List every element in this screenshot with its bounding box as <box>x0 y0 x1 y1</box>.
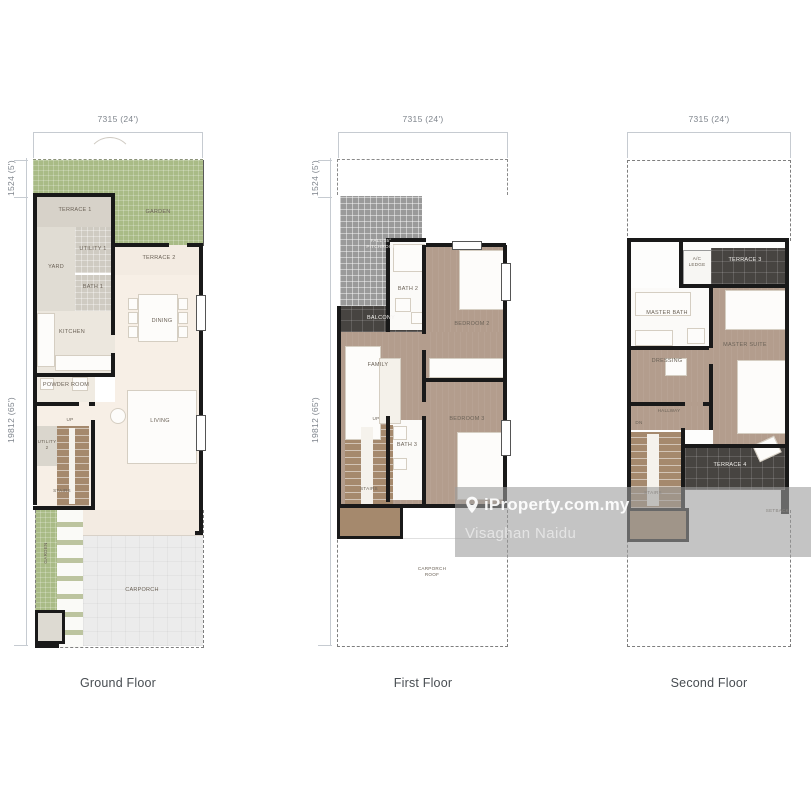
watermark-brand-text: iProperty.com.my <box>484 495 630 515</box>
ground-powder-label: POWDER ROOM <box>36 382 96 389</box>
wall-segment <box>111 195 115 247</box>
boundary-dashed-line <box>507 159 508 195</box>
bed-furniture <box>737 360 789 434</box>
door-opening <box>422 402 426 416</box>
wall-segment <box>426 378 504 382</box>
wall-segment <box>627 238 789 242</box>
toilet <box>687 328 705 344</box>
dimension-tick <box>507 132 508 158</box>
door-opening <box>685 402 703 406</box>
wall-segment <box>685 444 789 448</box>
ground-up-label: UP <box>40 417 100 423</box>
wall-segment <box>33 402 79 406</box>
ground-garden-label: GARDEN <box>128 209 188 216</box>
watermark-band: iProperty.com.my Visaghan Naidu <box>455 487 811 557</box>
wall-segment <box>33 195 37 505</box>
first-dim-left-lower: 19812 (65') <box>310 390 320 450</box>
ground-terrace1-label: TERRACE 1 <box>45 207 105 214</box>
ground-utility2-label: UTILITY 2 <box>37 439 57 451</box>
dimension-tick <box>202 132 203 158</box>
dimension-tick <box>14 160 28 161</box>
wall-segment <box>195 531 203 535</box>
dining-chair <box>128 298 138 310</box>
boundary-dashed-line <box>337 159 508 160</box>
second-hallway-label: HALLWAY <box>643 408 695 414</box>
ground-dining-label: DINING <box>132 318 192 325</box>
wall-segment <box>111 353 115 375</box>
family-sofa <box>345 346 381 440</box>
window <box>501 420 511 456</box>
basin <box>393 458 407 470</box>
door-opening <box>422 334 426 350</box>
first-up-label: UP <box>346 416 406 422</box>
first-balcony-label: BALCONY <box>348 315 414 322</box>
side-table <box>110 408 126 424</box>
boundary-dashed-line <box>337 159 338 195</box>
wall-segment <box>33 193 115 197</box>
ground-kitchen-label: KITCHEN <box>42 329 102 336</box>
dimension-line <box>33 132 203 133</box>
ground-dim-left-upper: 1524 (5') <box>6 148 16 208</box>
second-dim-top: 7315 (24') <box>649 114 769 124</box>
bed-furniture <box>459 250 505 310</box>
dimension-tick <box>338 132 339 158</box>
dimension-tick <box>627 132 628 158</box>
kitchen-counter <box>37 313 55 367</box>
ground-living-label: LIVING <box>130 418 190 425</box>
second-terrace3-area <box>711 248 789 284</box>
second-floor-title: Second Floor <box>649 676 769 690</box>
stair-stringer <box>361 427 373 505</box>
dimension-tick <box>318 197 332 198</box>
first-bath2-label: BATH 2 <box>378 286 438 293</box>
first-family-label: FAMILY <box>348 362 408 369</box>
toilet <box>395 298 411 312</box>
dimension-tick <box>33 132 34 158</box>
location-pin-icon <box>465 496 479 514</box>
ground-side-garden-label: GARDEN <box>43 523 49 583</box>
wall-segment <box>422 245 426 506</box>
first-floor-plan: FALL 15° PITCHROOF BALCONY BATH 2 BEDROO… <box>337 158 509 650</box>
first-bath3-label: BATH 3 <box>377 442 437 449</box>
wall-segment <box>33 506 95 510</box>
first-floor-title: First Floor <box>363 676 483 690</box>
first-dim-left-upper: 1524 (5') <box>310 148 320 208</box>
window <box>452 241 482 250</box>
second-terrace4-label: TERRACE 4 <box>700 462 760 469</box>
first-pitchroof-label: FALL 15° PITCHROOF <box>364 238 398 250</box>
second-ac-ledge-label: A/C LEDGE <box>685 256 709 268</box>
dining-chair <box>178 326 188 338</box>
wall-segment <box>631 346 709 350</box>
wall-segment <box>627 240 631 510</box>
wardrobe <box>429 358 505 378</box>
wall-segment <box>337 306 341 508</box>
ground-stairs-label: STAIRS <box>32 488 92 494</box>
ground-floor-title: Ground Floor <box>58 676 178 690</box>
living-sofa <box>127 390 197 464</box>
floorplan-canvas: 7315 (24') 1524 (5') 19812 (65') 7315 (2… <box>0 0 811 811</box>
dimension-line <box>330 158 331 646</box>
boundary-dashed-box <box>627 160 791 241</box>
dimension-tick <box>14 197 28 198</box>
second-dn-label: DN <box>631 420 647 426</box>
ground-floor-plan: TERRACE 1 GARDEN YARD UTILITY 1 BATH 1 T… <box>32 158 204 650</box>
watermark-user-text: Visaghan Naidu <box>465 525 576 542</box>
wall-segment <box>681 284 789 288</box>
second-master-suite-label: MASTER SUITE <box>715 342 775 349</box>
stair-enclosure <box>337 505 403 539</box>
dimension-tick <box>790 132 791 158</box>
gate-swing-arc <box>87 137 133 183</box>
ground-bath1-area <box>75 275 113 311</box>
dimension-line <box>627 132 791 133</box>
ground-dim-top: 7315 (24') <box>58 114 178 124</box>
wall-segment <box>679 242 683 288</box>
dining-chair <box>178 298 188 310</box>
toilet <box>393 426 407 440</box>
second-master-bath-label: MASTER BATH <box>637 310 697 317</box>
wall-segment <box>91 420 95 510</box>
ground-carporch-label: CARPORCH <box>112 587 172 594</box>
second-terrace3-label: TERRACE 3 <box>715 257 775 264</box>
dimension-tick <box>318 160 332 161</box>
meter-compartment <box>35 610 65 644</box>
ground-terrace2-label: TERRACE 2 <box>129 255 189 262</box>
window <box>196 415 206 451</box>
watermark-brand: iProperty.com.my <box>465 495 630 515</box>
second-dressing-label: DRESSING <box>637 358 697 365</box>
first-dim-top: 7315 (24') <box>363 114 483 124</box>
ground-yard-label: YARD <box>26 264 86 271</box>
first-stairs-label: STAIRS <box>341 486 397 492</box>
window <box>501 263 511 301</box>
ground-utility1-label: UTILITY 1 <box>63 246 123 253</box>
dimension-line <box>26 158 27 646</box>
dining-chair <box>128 326 138 338</box>
ground-dim-left-lower: 19812 (65') <box>6 390 16 450</box>
vanity-counter <box>635 330 673 346</box>
wall-segment <box>199 245 203 535</box>
dimension-line <box>338 132 508 133</box>
first-carporch-roof-label: CARPORCH ROOF <box>410 566 454 578</box>
second-floor-plan: A/C LEDGE TERRACE 3 MASTER BATH DRESSING… <box>625 158 797 650</box>
ground-bath1-label: BATH 1 <box>63 284 123 291</box>
dimension-tick <box>318 645 332 646</box>
wall-segment <box>785 240 789 510</box>
door-opening <box>709 348 713 364</box>
kitchen-counter <box>55 355 115 371</box>
wall-segment <box>33 373 115 377</box>
wall-segment <box>89 402 95 406</box>
first-bedroom2-label: BEDROOM 2 <box>442 321 502 328</box>
dimension-tick <box>14 645 28 646</box>
window <box>196 295 206 331</box>
wardrobe <box>725 290 789 330</box>
first-bedroom3-label: BEDROOM 3 <box>437 416 497 423</box>
